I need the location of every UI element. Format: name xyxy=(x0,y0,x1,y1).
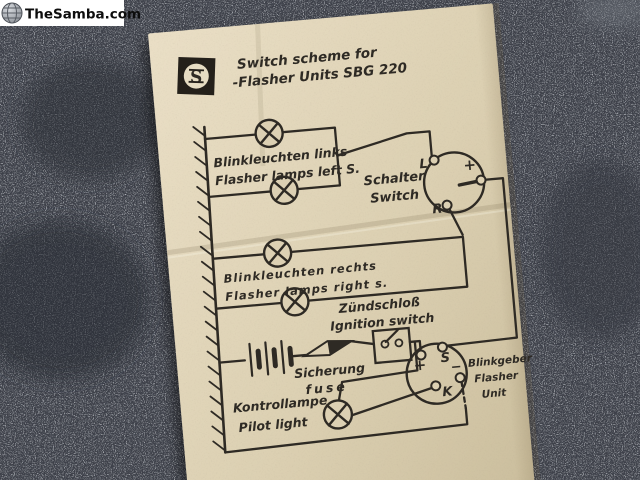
switch-label-R: R xyxy=(432,202,443,218)
flasher-label-plus: + xyxy=(413,356,427,375)
flasher-label-S: S xyxy=(440,351,451,367)
watermark: TheSamba.com xyxy=(0,0,141,26)
label-flasher-en2: Unit xyxy=(481,387,508,401)
lamp-icon xyxy=(263,238,292,267)
switch-terminal-R xyxy=(442,200,452,210)
watermark-text: TheSamba.com xyxy=(25,7,141,23)
stone-dark-patch xyxy=(20,60,160,180)
manufacturer-logo-icon: S xyxy=(177,57,215,95)
switch-terminal-L xyxy=(429,155,439,165)
flasher-label-minus: − xyxy=(450,360,462,376)
globe-icon xyxy=(2,3,22,23)
switch-terminal-plus xyxy=(476,175,486,185)
flasher-terminal-K xyxy=(431,381,441,391)
paper-sheet: S Switch scheme for -Flasher Units SBG 2… xyxy=(148,3,546,480)
switch-label-plus: + xyxy=(463,156,477,175)
photo-canvas: S Switch scheme for -Flasher Units SBG 2… xyxy=(0,0,640,480)
photo-of-instruction-sheet: S Switch scheme for -Flasher Units SBG 2… xyxy=(0,0,640,480)
lamp-icon xyxy=(255,119,284,148)
